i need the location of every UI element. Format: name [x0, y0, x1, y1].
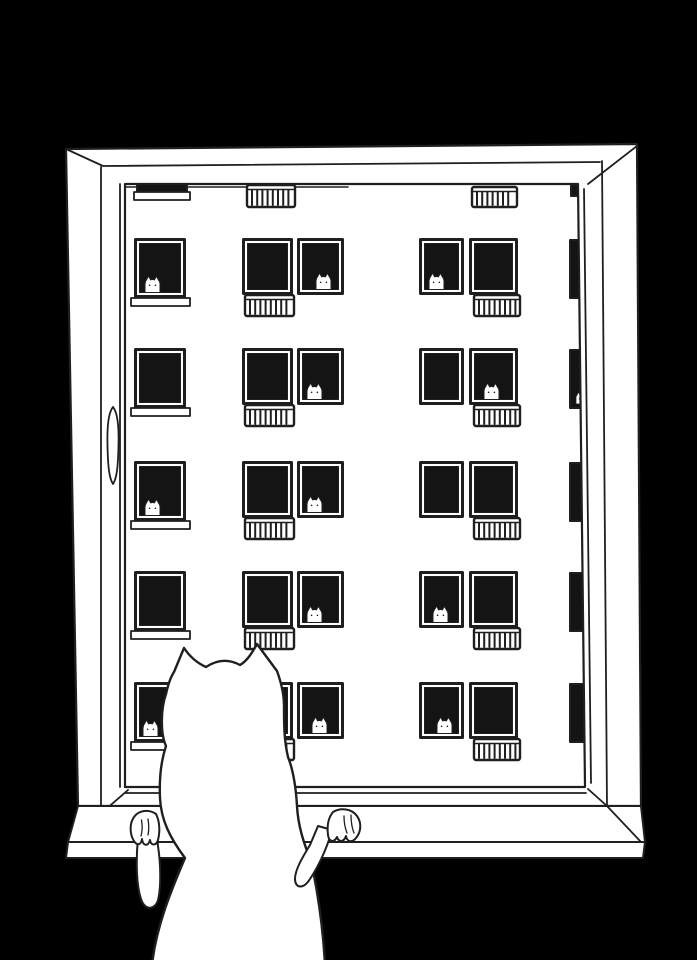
window-sill-ledge: [134, 192, 190, 200]
apartment-window: [471, 240, 517, 294]
window-handle: [107, 407, 118, 484]
apartment-window: [471, 684, 517, 738]
balcony-railing: [474, 739, 520, 760]
cat-right-paw: [328, 809, 361, 841]
apartment-window: [471, 463, 517, 517]
apartment-window: [244, 573, 292, 627]
apartment-window: [244, 240, 292, 294]
balcony-railing: [245, 405, 294, 426]
balcony-railing: [245, 518, 294, 539]
balcony-railing: [474, 405, 520, 426]
balcony-railing: [474, 518, 520, 539]
balcony-railing: [245, 295, 294, 316]
apartment-window: [136, 350, 185, 407]
apartment-window: [136, 573, 185, 630]
apartment-window: [244, 350, 292, 404]
illustration-stage: [0, 0, 697, 960]
window-sill-ledge: [131, 631, 190, 639]
balcony-railing: [247, 185, 295, 207]
apartment-window: [421, 463, 463, 517]
window-sill-ledge: [131, 408, 190, 416]
window-sill-ledge: [131, 521, 190, 529]
apartment-window: [471, 573, 517, 627]
balcony-railing: [474, 295, 520, 316]
window-sill-ledge: [131, 298, 190, 306]
balcony-railing: [474, 628, 520, 649]
apartment-window: [421, 350, 463, 404]
cat-left-paw: [131, 811, 160, 845]
cat-window-illustration: [0, 0, 697, 960]
balcony-railing: [472, 187, 517, 207]
balcony-railing: [245, 628, 294, 649]
apartment-window: [244, 463, 292, 517]
